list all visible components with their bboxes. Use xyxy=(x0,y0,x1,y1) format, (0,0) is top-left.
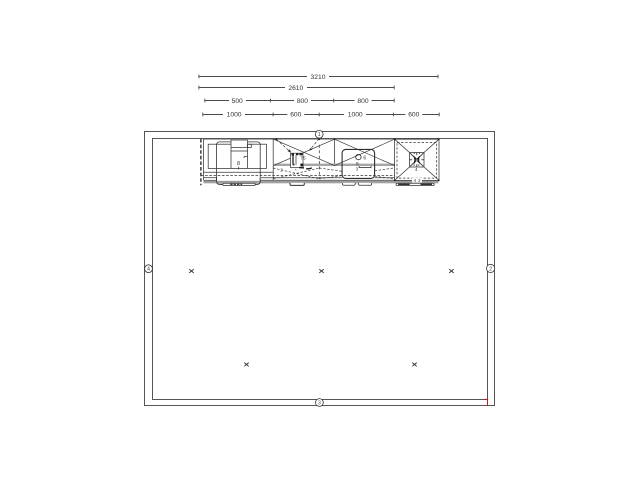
svg-text:1000: 1000 xyxy=(227,112,242,119)
svg-text:500: 500 xyxy=(232,98,243,105)
svg-text:600: 600 xyxy=(408,112,419,119)
svg-text:9: 9 xyxy=(356,161,359,166)
svg-text:800: 800 xyxy=(357,98,368,105)
svg-text:^: ^ xyxy=(295,168,297,173)
svg-text:4: 4 xyxy=(415,167,418,172)
svg-text:x: x xyxy=(418,162,420,167)
svg-text:3: 3 xyxy=(356,166,359,171)
svg-text:3: 3 xyxy=(318,400,321,406)
svg-text:600: 600 xyxy=(290,112,301,119)
svg-text:800: 800 xyxy=(297,98,308,105)
svg-text:2: 2 xyxy=(489,266,492,272)
svg-text:6: 6 xyxy=(363,156,366,162)
svg-text:3210: 3210 xyxy=(311,74,326,81)
svg-text:4: 4 xyxy=(147,267,150,273)
svg-text:8: 8 xyxy=(237,161,240,167)
svg-text:2610: 2610 xyxy=(288,85,303,92)
svg-text:1: 1 xyxy=(318,132,321,138)
svg-text:1000: 1000 xyxy=(348,112,363,119)
